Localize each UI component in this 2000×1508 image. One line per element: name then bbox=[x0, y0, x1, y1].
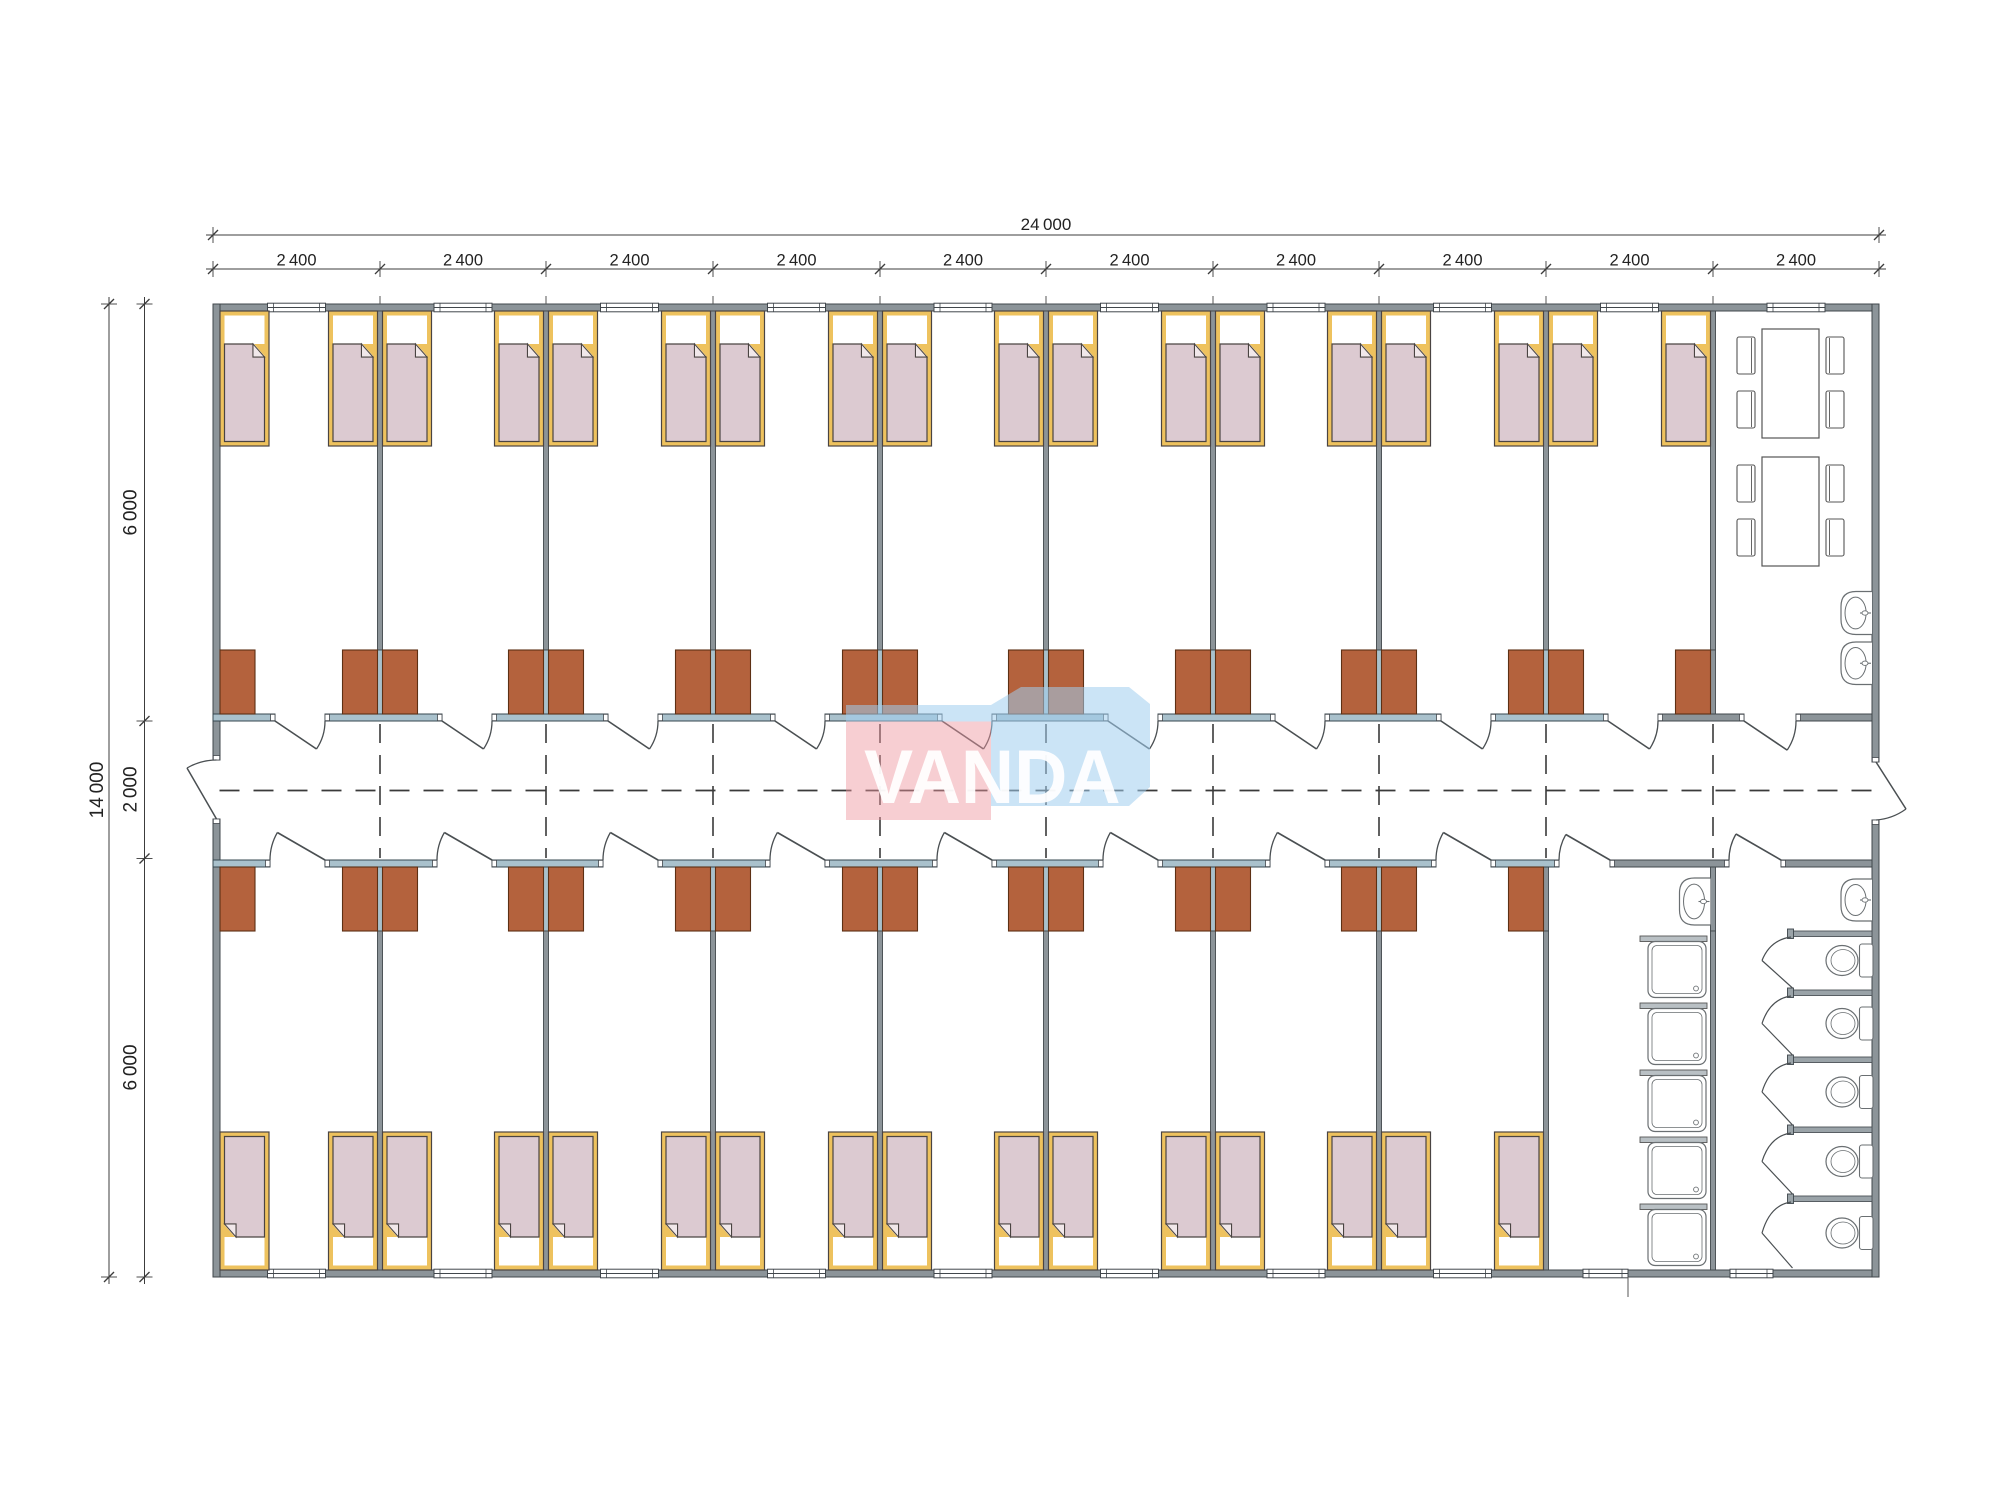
svg-text:2 400: 2 400 bbox=[1109, 252, 1149, 270]
svg-text:14 000: 14 000 bbox=[87, 762, 108, 819]
svg-text:2 400: 2 400 bbox=[1776, 252, 1816, 270]
svg-text:24 000: 24 000 bbox=[1021, 215, 1072, 234]
svg-text:2 400: 2 400 bbox=[1442, 252, 1482, 270]
svg-text:2 400: 2 400 bbox=[276, 252, 316, 270]
svg-text:2 400: 2 400 bbox=[609, 252, 649, 270]
svg-text:2 400: 2 400 bbox=[443, 252, 483, 270]
svg-text:6 000: 6 000 bbox=[121, 489, 142, 535]
svg-text:2 400: 2 400 bbox=[1276, 252, 1316, 270]
svg-text:2 000: 2 000 bbox=[121, 766, 142, 812]
svg-text:2 400: 2 400 bbox=[1609, 252, 1649, 270]
svg-text:VANDA: VANDA bbox=[864, 734, 1121, 819]
svg-text:2 400: 2 400 bbox=[776, 252, 816, 270]
svg-text:6 000: 6 000 bbox=[121, 1044, 142, 1090]
svg-text:2 400: 2 400 bbox=[943, 252, 983, 270]
